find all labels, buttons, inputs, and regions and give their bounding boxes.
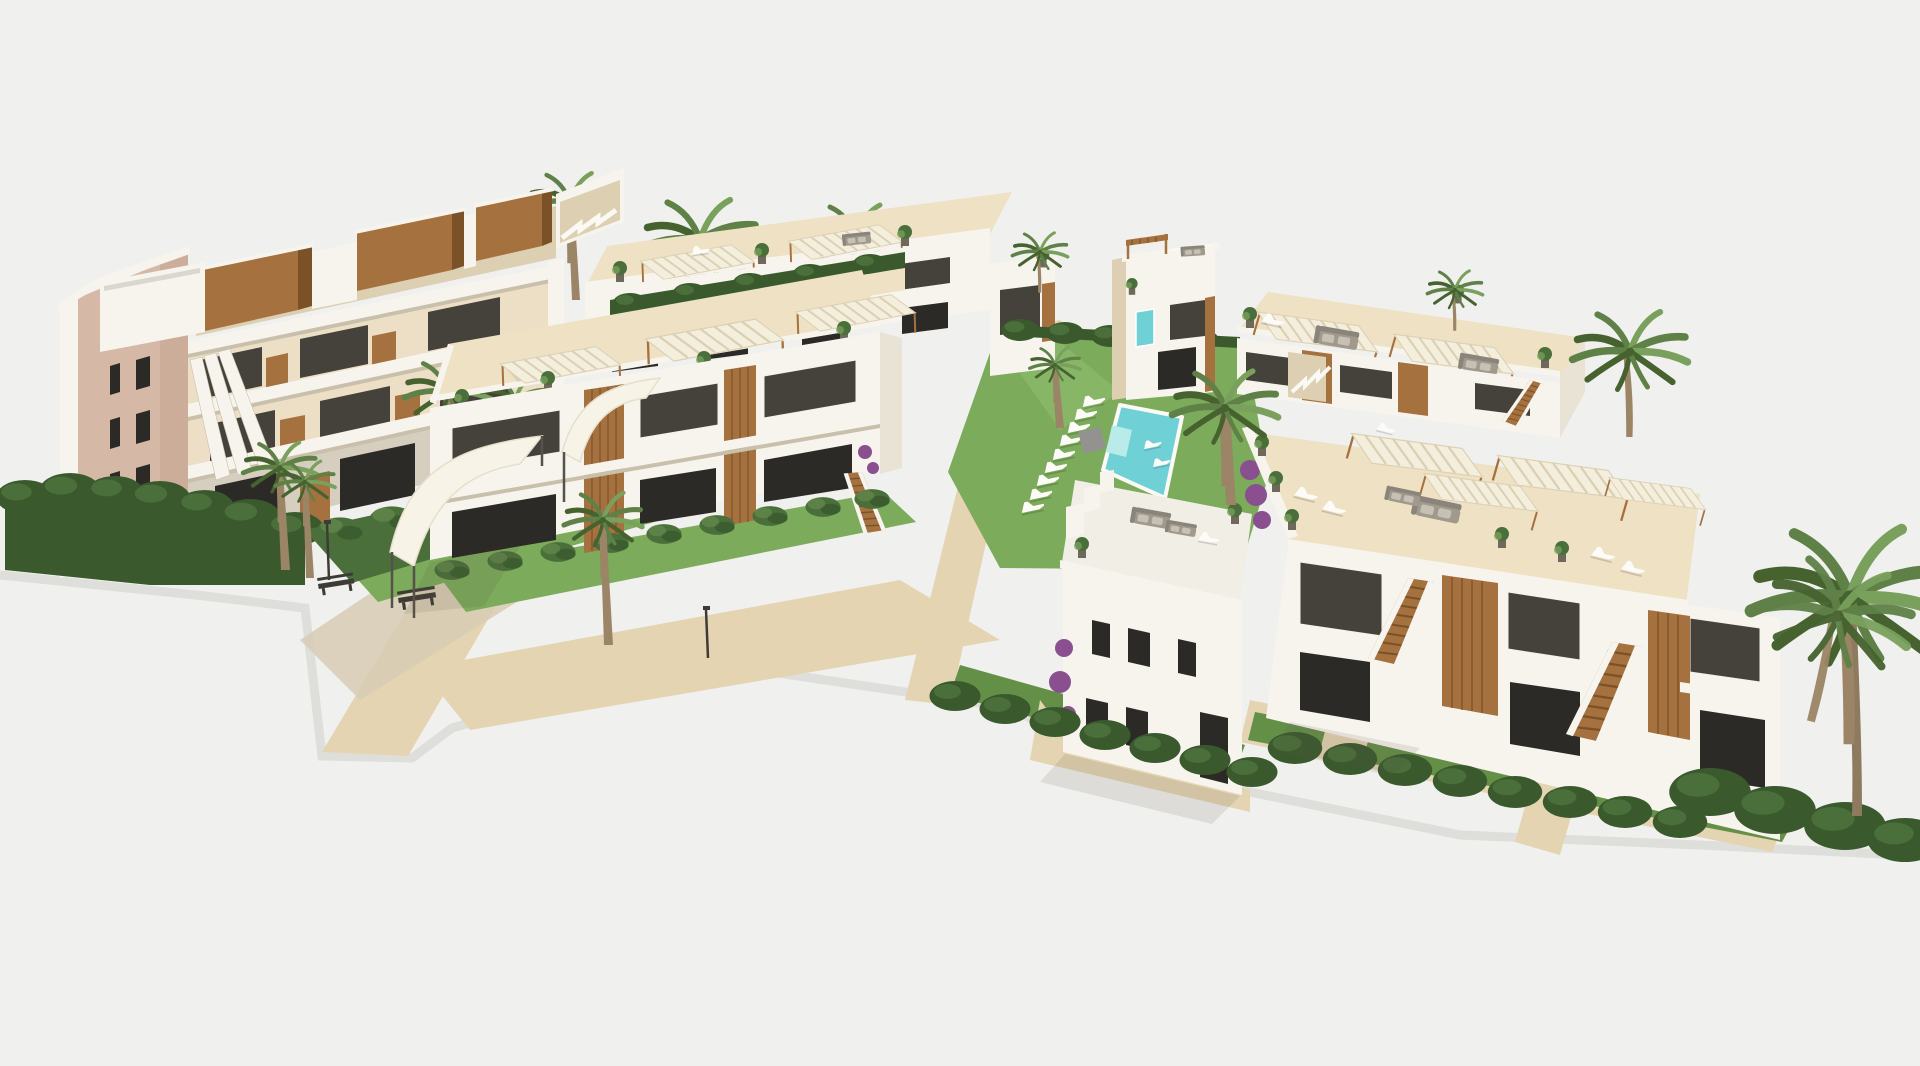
- turquoise-glazing: [1136, 309, 1154, 347]
- architectural-render: 3D architectural rendering of a Mediterr…: [0, 0, 1920, 1066]
- bougainvillea: [867, 462, 879, 474]
- architectural-render-canvas: 3D architectural rendering of a Mediterr…: [0, 0, 1920, 1066]
- bougainvillea: [858, 445, 872, 459]
- roof-sofa: [1180, 245, 1205, 257]
- tower-side: [1112, 257, 1126, 400]
- white-staircase: [1288, 352, 1330, 402]
- tower-entry: [1158, 347, 1196, 390]
- wood-slat-core: [1398, 362, 1428, 416]
- side-face: [880, 332, 902, 474]
- tower-glazing: [1170, 300, 1205, 340]
